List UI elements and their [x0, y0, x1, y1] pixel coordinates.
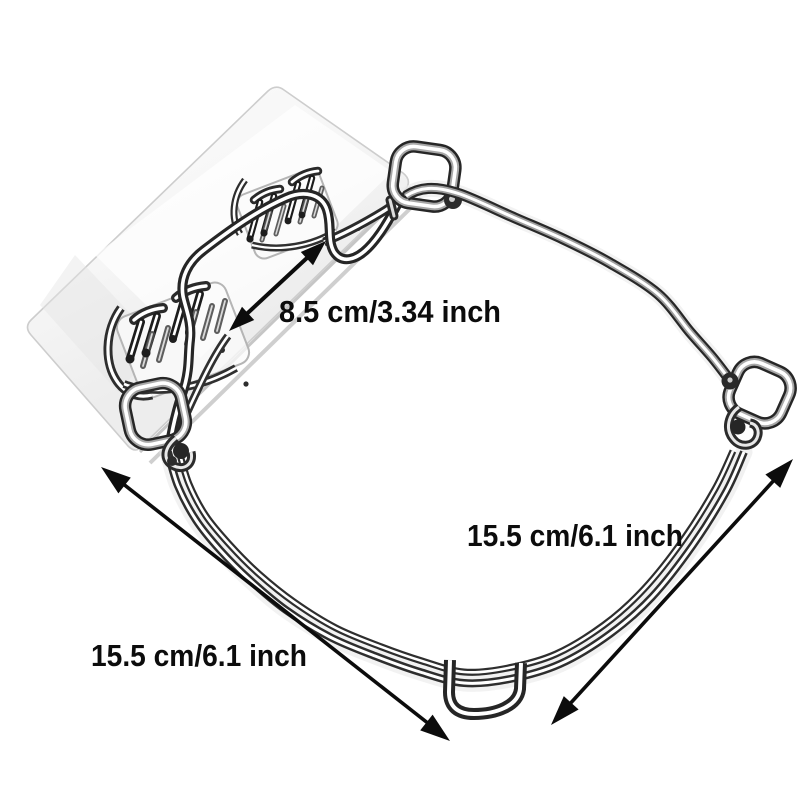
svg-text:15.5 cm/6.1 inch: 15.5 cm/6.1 inch [467, 518, 683, 553]
svg-text:15.5 cm/6.1 inch: 15.5 cm/6.1 inch [91, 638, 307, 673]
svg-text:8.5 cm/3.34 inch: 8.5 cm/3.34 inch [279, 294, 501, 329]
